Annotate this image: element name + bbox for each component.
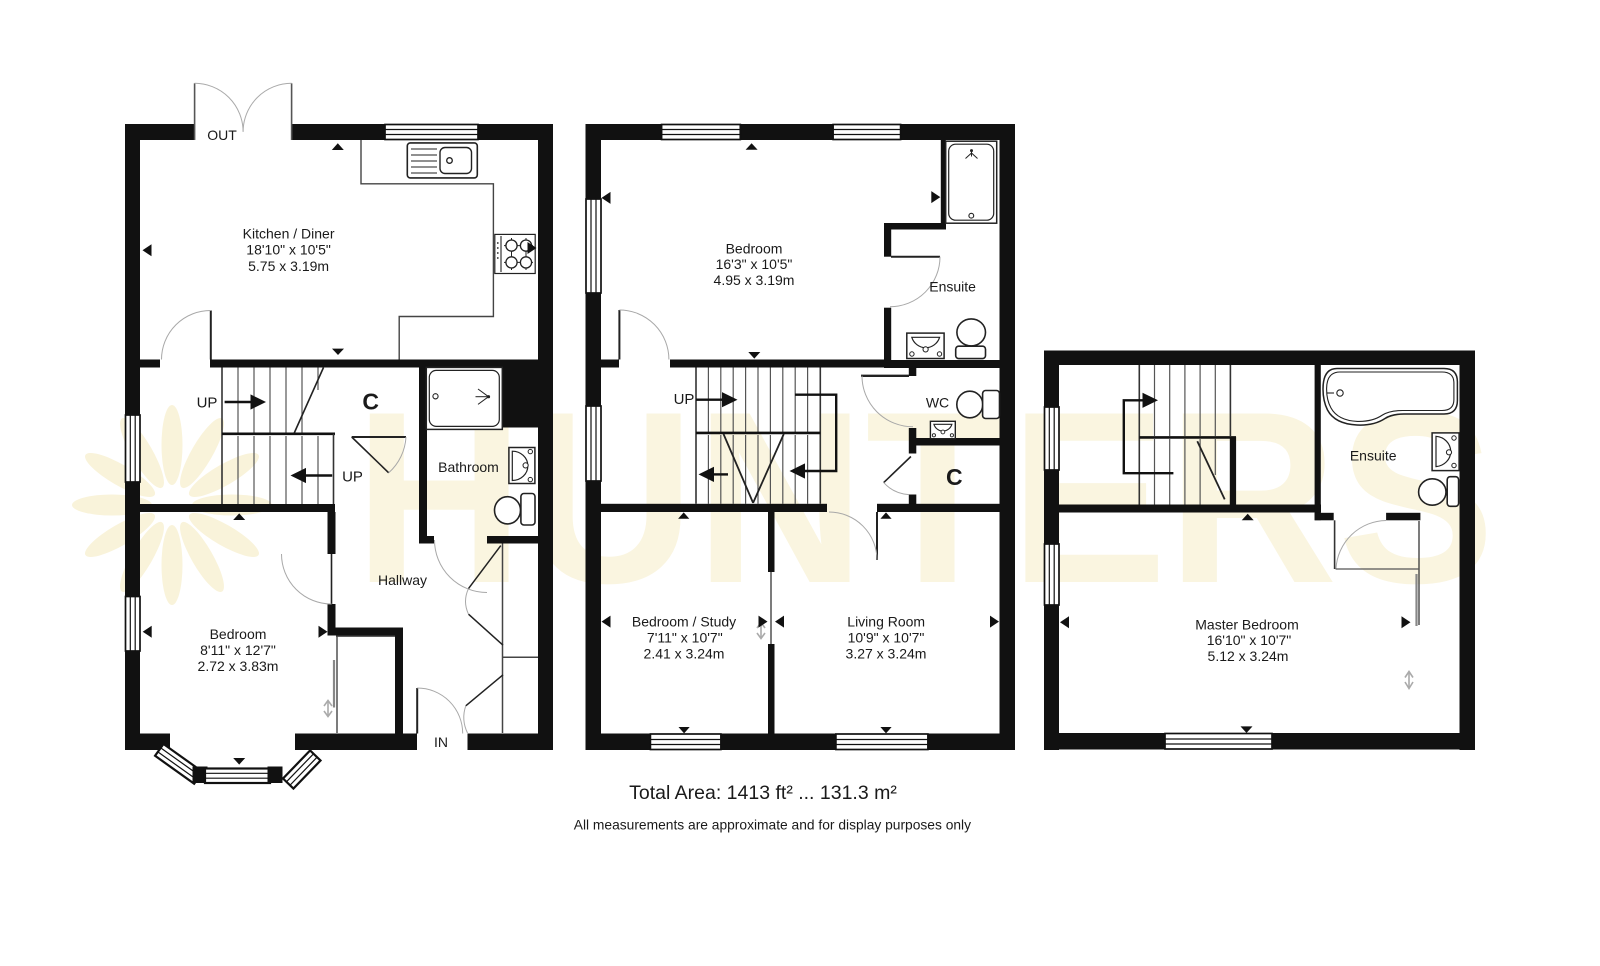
svg-text:8'11" x 12'7": 8'11" x 12'7" — [200, 642, 276, 658]
svg-text:Total Area: 1413 ft² ... 131.3: Total Area: 1413 ft² ... 131.3 m² — [629, 782, 897, 804]
svg-text:Bedroom: Bedroom — [210, 626, 267, 642]
svg-text:Ensuite: Ensuite — [929, 279, 976, 295]
svg-text:UP: UP — [674, 391, 695, 408]
svg-text:IN: IN — [434, 734, 448, 750]
svg-text:2.41 x 3.24m: 2.41 x 3.24m — [644, 645, 725, 661]
svg-text:4.95 x 3.19m: 4.95 x 3.19m — [714, 272, 795, 288]
svg-text:Bathroom: Bathroom — [438, 459, 499, 475]
svg-text:C: C — [946, 464, 963, 490]
svg-text:16'10" x 10'7": 16'10" x 10'7" — [1207, 632, 1292, 648]
svg-text:Hallway: Hallway — [378, 572, 427, 588]
svg-text:10'9" x 10'7": 10'9" x 10'7" — [848, 629, 925, 645]
svg-text:Master Bedroom: Master Bedroom — [1195, 616, 1298, 632]
svg-text:18'10" x 10'5": 18'10" x 10'5" — [246, 242, 331, 258]
svg-text:OUT: OUT — [207, 127, 237, 143]
svg-text:3.27 x 3.24m: 3.27 x 3.24m — [846, 645, 927, 661]
svg-text:Ensuite: Ensuite — [1350, 448, 1397, 464]
svg-text:Living Room: Living Room — [847, 613, 925, 629]
svg-text:UP: UP — [197, 395, 218, 412]
svg-text:UP: UP — [342, 469, 363, 486]
svg-text:Bedroom: Bedroom — [726, 240, 783, 256]
svg-text:WC: WC — [926, 395, 949, 411]
svg-text:C: C — [362, 389, 379, 415]
svg-text:5.12 x 3.24m: 5.12 x 3.24m — [1208, 648, 1289, 664]
svg-text:2.72 x 3.83m: 2.72 x 3.83m — [198, 658, 279, 674]
svg-text:Bedroom / Study: Bedroom / Study — [632, 613, 736, 629]
svg-text:Kitchen / Diner: Kitchen / Diner — [243, 225, 335, 241]
svg-text:All measurements are approxima: All measurements are approximate and for… — [574, 818, 971, 833]
svg-text:7'11" x 10'7": 7'11" x 10'7" — [647, 629, 723, 645]
svg-text:5.75 x 3.19m: 5.75 x 3.19m — [248, 258, 329, 274]
svg-text:16'3" x 10'5": 16'3" x 10'5" — [716, 256, 793, 272]
